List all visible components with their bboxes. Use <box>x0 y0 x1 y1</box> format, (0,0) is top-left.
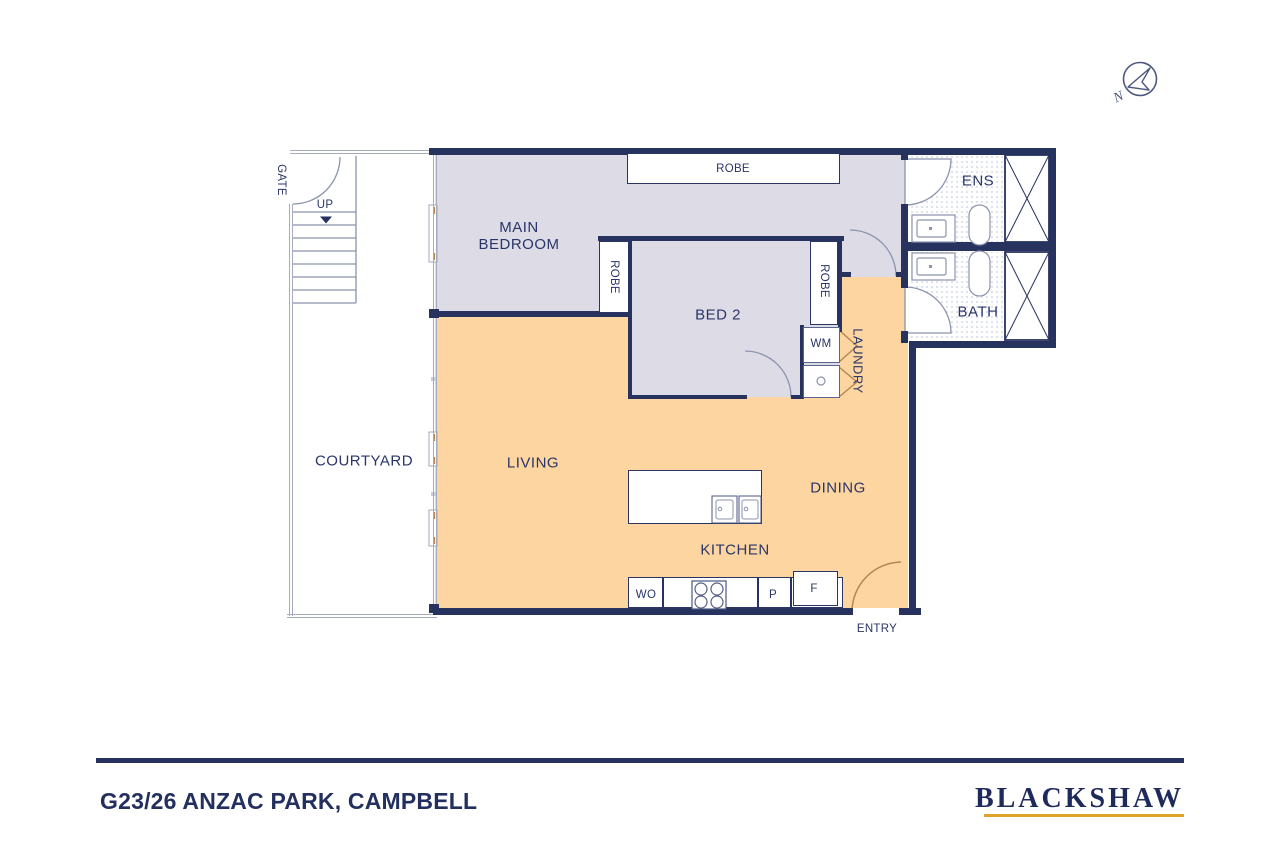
bench-divider-3 <box>790 577 792 608</box>
bench-divider-1 <box>662 577 664 608</box>
courtyard-fence-left <box>289 204 293 616</box>
floorplan-page: MAIN BEDROOM BED 2 LIVING DINING KITCHEN… <box>0 0 1280 853</box>
main-bedroom-label: MAIN BEDROOM <box>478 219 559 253</box>
ens-shower <box>1005 155 1049 242</box>
ens-floor-tiles <box>908 154 1005 242</box>
dining-label: DINING <box>810 480 866 497</box>
ens-label: ENS <box>962 173 994 190</box>
up-label: UP <box>317 199 334 211</box>
wall-ens-bath-divider <box>901 242 1056 251</box>
ens-vanity <box>912 215 955 242</box>
kitchen-label: KITCHEN <box>700 542 769 559</box>
wall-bed2-bottom-left <box>628 395 747 399</box>
wall-bath-left-c <box>901 331 908 343</box>
robe-bed2-label: ROBE <box>818 264 830 298</box>
fridge-label: F <box>810 583 817 595</box>
wall-bed2-right <box>838 236 842 332</box>
ens-toilet <box>969 205 990 245</box>
address-title: G23/26 ANZAC PARK, CAMPBELL <box>100 788 477 815</box>
kitchen-island <box>628 470 762 524</box>
main-bedroom-label-line1: MAIN <box>478 219 559 236</box>
robe-top-label: ROBE <box>716 163 750 175</box>
wall-tick-bottom <box>429 604 439 613</box>
courtyard-label: COURTYARD <box>315 453 413 470</box>
laundry-tub-box <box>803 365 840 398</box>
wall-tick-mid <box>429 309 439 318</box>
compass-icon <box>1124 63 1157 96</box>
main-bedroom-label-line2: BEDROOM <box>478 236 559 253</box>
wall-oven-label: WO <box>636 589 656 601</box>
entry-label: ENTRY <box>857 623 897 635</box>
north-label: N <box>1111 89 1126 107</box>
bath-toilet <box>969 251 990 296</box>
brand-logo: BLACKSHAW <box>975 783 1184 815</box>
courtyard-fence-top <box>290 150 435 154</box>
wall-bath-left-a <box>901 148 908 160</box>
ens-door-swing <box>905 159 951 205</box>
gate-door-arc <box>293 157 340 204</box>
living-label: LIVING <box>507 455 559 472</box>
pantry-label: P <box>769 589 777 601</box>
wall-hall-stub-right <box>896 272 908 277</box>
brand-logo-underline <box>984 814 1184 817</box>
courtyard-fence-bottom <box>287 614 437 618</box>
hall-laundry-dining-floor <box>842 277 908 608</box>
footer-divider <box>96 758 1184 763</box>
bath-label: BATH <box>958 304 999 321</box>
stairs <box>293 156 356 303</box>
wall-hall-stub-left <box>838 272 851 277</box>
robe-main-label: ROBE <box>608 260 620 294</box>
wall-bath-bottom <box>909 341 1056 348</box>
living-glazed-wall <box>433 154 437 608</box>
bath-vanity <box>912 253 955 280</box>
laundry-label: LAUNDRY <box>851 328 866 393</box>
bed2-label: BED 2 <box>695 307 741 324</box>
stairs-down-arrow-icon <box>320 217 332 224</box>
gate-label: GATE <box>275 164 287 196</box>
bath-shower <box>1005 252 1049 340</box>
bench-divider-2 <box>757 577 759 608</box>
wall-bottom <box>433 608 853 615</box>
wall-right-lower <box>909 341 916 615</box>
bath-floor-tiles <box>908 252 1005 340</box>
wall-tick-top <box>429 148 439 155</box>
washing-machine-label: WM <box>810 338 831 350</box>
wall-bed2-top <box>598 236 844 241</box>
bath-door-swing <box>905 287 951 333</box>
